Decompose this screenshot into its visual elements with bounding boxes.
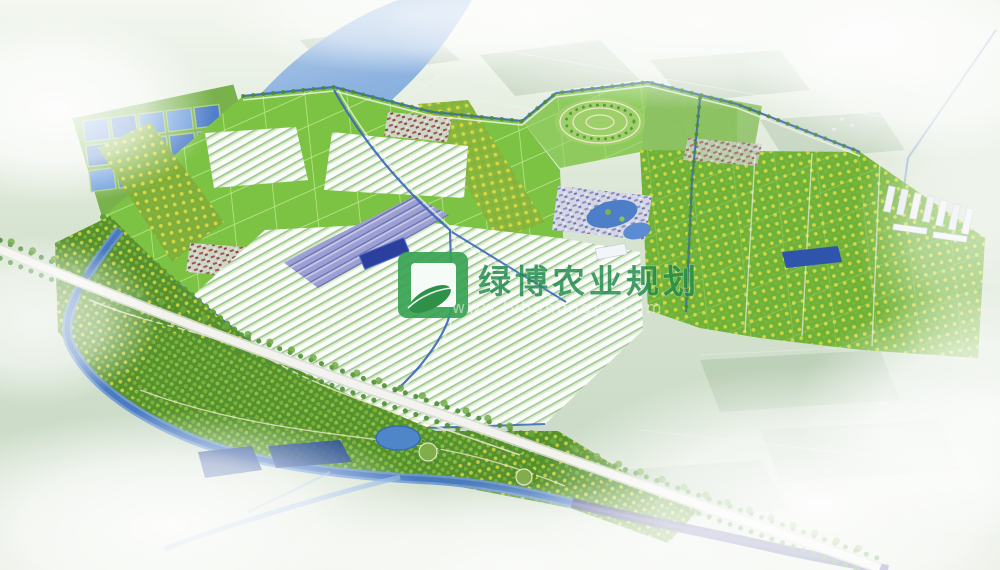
masterplan-rendering: 绿博农业规划 www.lvbonongye.com	[0, 0, 1000, 570]
aerial-scene: 绿博农业规划 www.lvbonongye.com	[0, 0, 1000, 570]
watermark-title: 绿博农业规划	[478, 262, 700, 301]
wetland-pond	[376, 426, 420, 450]
watermark-url: www.lvbonongye.com	[452, 298, 664, 317]
watermark: 绿博农业规划 www.lvbonongye.com	[398, 252, 700, 319]
